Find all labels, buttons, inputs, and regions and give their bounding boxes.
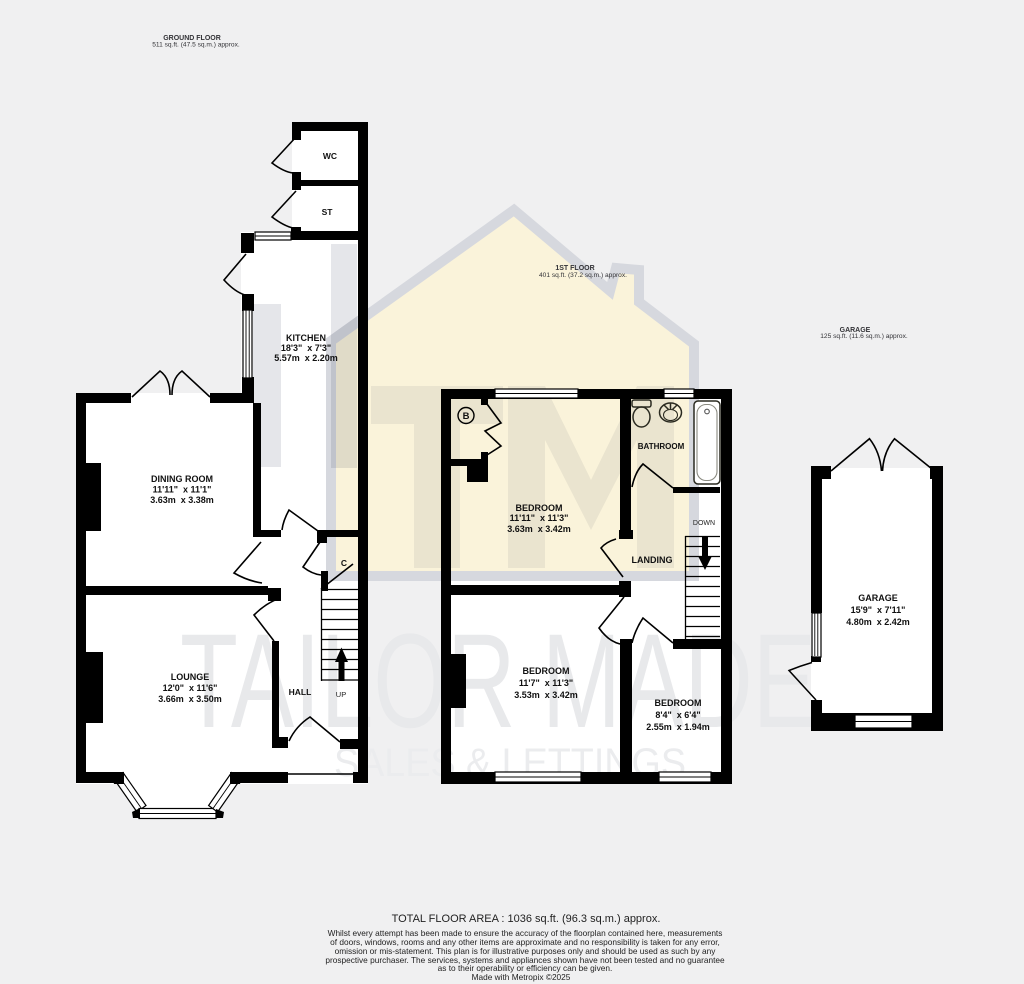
svg-text:GARAGE: GARAGE [858, 593, 898, 603]
svg-text:ST: ST [322, 207, 334, 217]
svg-text:401 sq.ft. (37.2 sq.m.) approx: 401 sq.ft. (37.2 sq.m.) approx. [539, 272, 627, 279]
svg-text:TOTAL FLOOR AREA : 1036 sq.ft.: TOTAL FLOOR AREA : 1036 sq.ft. (96.3 sq.… [392, 913, 661, 925]
svg-text:BEDROOM: BEDROOM [523, 666, 570, 676]
svg-text:DINING ROOM: DINING ROOM [151, 474, 213, 484]
svg-text:18'3" x 7'3": 18'3" x 7'3" [281, 343, 331, 353]
svg-text:4.80m x 2.42m: 4.80m x 2.42m [846, 617, 910, 627]
svg-text:1ST FLOOR: 1ST FLOOR [555, 265, 594, 272]
svg-text:125 sq.ft. (11.6 sq.m.) approx: 125 sq.ft. (11.6 sq.m.) approx. [820, 333, 908, 340]
svg-text:BEDROOM: BEDROOM [516, 503, 563, 513]
svg-text:15'9" x 7'11": 15'9" x 7'11" [851, 605, 906, 615]
svg-text:3.63m x 3.42m: 3.63m x 3.42m [507, 524, 571, 534]
svg-text:B: B [463, 411, 470, 422]
svg-text:3.66m x 3.50m: 3.66m x 3.50m [158, 694, 222, 704]
svg-text:BEDROOM: BEDROOM [655, 698, 702, 708]
svg-text:KITCHEN: KITCHEN [286, 333, 326, 343]
svg-text:BATHROOM: BATHROOM [638, 442, 685, 451]
svg-text:11'7" x 11'3": 11'7" x 11'3" [519, 678, 573, 688]
svg-text:12'0" x 11'6": 12'0" x 11'6" [163, 683, 218, 693]
svg-text:LANDING: LANDING [632, 555, 673, 565]
svg-text:Made with Metropix ©2025: Made with Metropix ©2025 [472, 972, 571, 982]
svg-text:3.63m x 3.38m: 3.63m x 3.38m [150, 495, 214, 505]
svg-text:11'11" x 11'1": 11'11" x 11'1" [153, 485, 212, 495]
svg-text:8'4" x 6'4": 8'4" x 6'4" [655, 710, 700, 720]
svg-text:UP: UP [336, 690, 346, 699]
svg-text:3.53m x 3.42m: 3.53m x 3.42m [514, 690, 578, 700]
svg-text:511 sq.ft. (47.5 sq.m.) approx: 511 sq.ft. (47.5 sq.m.) approx. [152, 42, 240, 49]
svg-text:11'11" x 11'3": 11'11" x 11'3" [510, 513, 569, 523]
svg-text:WC: WC [323, 151, 337, 161]
svg-text:C: C [341, 558, 347, 568]
svg-text:DOWN: DOWN [693, 520, 715, 527]
svg-text:5.57m x 2.20m: 5.57m x 2.20m [274, 353, 338, 363]
svg-text:HALL: HALL [289, 687, 312, 697]
svg-text:LOUNGE: LOUNGE [171, 672, 210, 682]
svg-text:2.55m x 1.94m: 2.55m x 1.94m [646, 722, 710, 732]
